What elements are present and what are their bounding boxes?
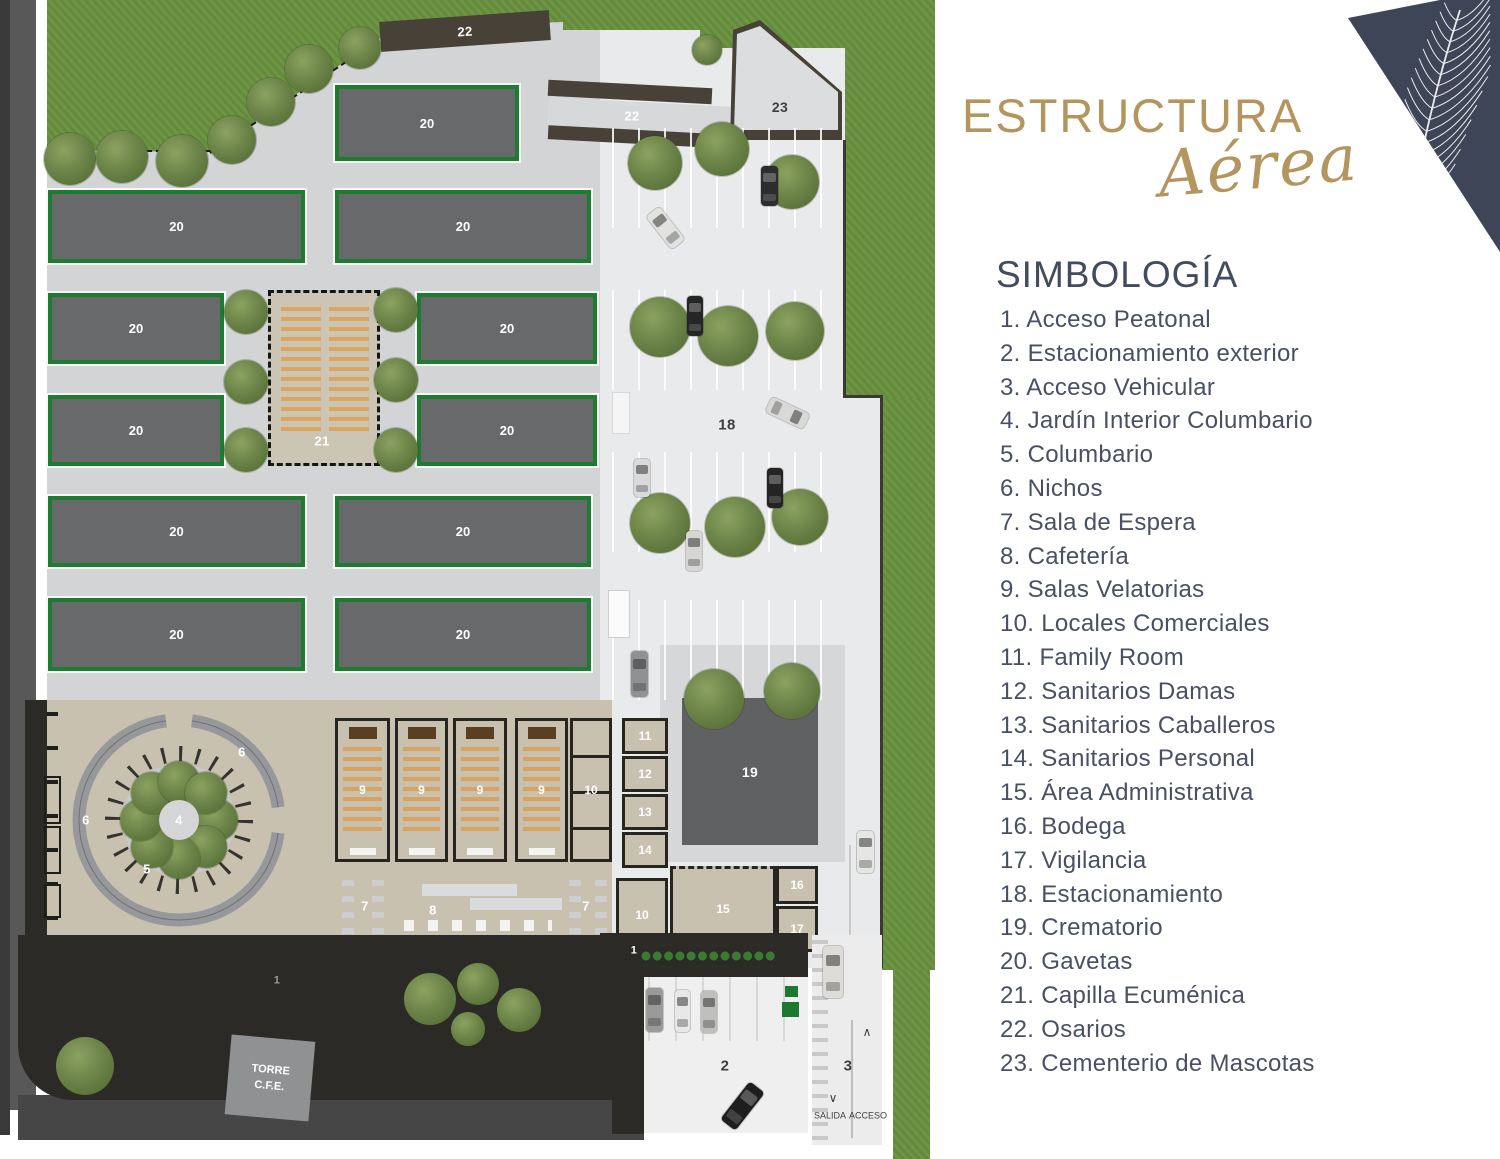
bodega: 16 (776, 866, 818, 904)
car-icon (767, 468, 783, 508)
acceso-label: ACCESO (849, 1112, 887, 1121)
legend-item: 8. Cafetería (1000, 540, 1315, 574)
zone-label-espera: 7 (361, 900, 369, 913)
feather-icon (1338, 0, 1500, 262)
car-icon (686, 531, 702, 571)
cafeteria-counter (470, 898, 562, 910)
casket (528, 727, 556, 739)
legend-item: 15. Área Administrativa (1000, 776, 1315, 810)
legend-item: 7. Sala de Espera (1000, 506, 1315, 540)
legend-item: 11. Family Room (1000, 641, 1315, 675)
zone-label-espera-2: 7 (582, 900, 590, 913)
boundary-wall-right-lower (880, 398, 883, 968)
legend-item: 10. Locales Comerciales (1000, 607, 1315, 641)
tree-icon (96, 131, 148, 183)
tree-icon (766, 302, 824, 360)
legend-item: 3. Acceso Vehicular (1000, 371, 1315, 405)
torre-label-line2: C.F.E. (254, 1077, 285, 1096)
zone-label-capilla: 21 (314, 435, 329, 448)
tree-icon (374, 358, 418, 402)
cafeteria-tables (404, 920, 552, 931)
legend-item: 9. Salas Velatorias (1000, 573, 1315, 607)
casket (349, 727, 377, 739)
zone-label-crematorio: 19 (742, 765, 758, 779)
tree-icon (457, 963, 499, 1005)
gaveta-block: 20 (335, 85, 519, 161)
zone-label-acc-vehicular: 3 (844, 1059, 853, 1074)
tree-icon (247, 78, 295, 126)
tree-icon (404, 973, 456, 1025)
gaveta-block: 20 (417, 293, 597, 364)
zone-label-acceso-peatonal-2: 1 (274, 976, 281, 987)
legend-item: 20. Gavetas (1000, 945, 1315, 979)
legend-item: 13. Sanitarios Caballeros (1000, 709, 1315, 743)
car-icon (646, 988, 663, 1032)
sanitarios-damas: 12 (622, 756, 668, 792)
sala-velatoria: 9 (395, 718, 448, 862)
legend-item: 12. Sanitarios Damas (1000, 675, 1315, 709)
car-icon (761, 166, 778, 206)
tree-icon (698, 306, 758, 366)
van-icon (823, 946, 843, 998)
kiosk-b (612, 392, 630, 434)
tree-icon (339, 27, 381, 69)
legend-item: 16. Bodega (1000, 810, 1315, 844)
corner-wedge (1338, 0, 1500, 262)
tree-icon (705, 497, 765, 557)
legend-item: 18. Estacionamiento (1000, 878, 1315, 912)
zone-label-nichos-2: 6 (82, 814, 90, 827)
legend-item: 22. Osarios (1000, 1013, 1315, 1047)
shrub-row (640, 950, 776, 963)
tree-icon (497, 988, 541, 1032)
legend-item: 21. Capilla Ecuménica (1000, 979, 1315, 1013)
hedge-square (785, 986, 798, 997)
tree-icon (684, 669, 744, 729)
cafeteria-counter (422, 884, 517, 896)
tree-icon (764, 663, 820, 719)
page: { "brand": { "title": "ESTRUCTURA", "sub… (0, 0, 1500, 1159)
sala-velatoria: 9 (335, 718, 390, 862)
gaveta-block: 20 (48, 293, 224, 364)
casket (408, 727, 436, 739)
tree-icon (695, 122, 749, 176)
kiosk-a (608, 590, 630, 638)
zone-label-est-exterior: 2 (721, 1059, 730, 1074)
locales-corridor: 10 (570, 718, 612, 862)
legend-item: 23. Cementerio de Mascotas (1000, 1047, 1315, 1081)
zone-label-velatorias: 9 (456, 784, 504, 796)
gaveta-block: 20 (417, 395, 597, 466)
casket (466, 727, 494, 739)
zone-label-velatorias: 9 (518, 784, 565, 796)
legend-item: 2. Estacionamiento exterior (1000, 337, 1315, 371)
gaveta-block: 20 (48, 496, 305, 567)
tree-icon (630, 493, 690, 553)
legend-item: 6. Nichos (1000, 472, 1315, 506)
gaveta-block: 20 (335, 496, 591, 567)
zone-label-columbario: 5 (143, 863, 151, 876)
chapel-pews-left (281, 307, 321, 435)
tree-icon (56, 1037, 114, 1095)
zone-label-nichos: 6 (238, 746, 246, 759)
zone-label-velatorias: 9 (398, 784, 445, 796)
door-threshold (350, 848, 376, 855)
tree-icon (374, 288, 418, 332)
zone-label-cafeteria: 8 (429, 904, 437, 917)
wall-planter (44, 884, 61, 918)
zone-label-acceso-peatonal: 1 (631, 946, 638, 957)
tree-icon (156, 135, 208, 187)
legend-item: 5. Columbario (1000, 438, 1315, 472)
legend-item: 4. Jardín Interior Columbario (1000, 404, 1315, 438)
gaveta-block: 20 (48, 190, 305, 263)
tree-icon (628, 136, 682, 190)
gaveta-block: 20 (48, 395, 224, 466)
grass-right-upper (845, 20, 935, 398)
site-plan: 22 22 23 20 20 20 20 20 20 20 20 20 20 2… (0, 0, 940, 1159)
zone-label-jardin: 4 (175, 814, 183, 827)
tree-icon (451, 1012, 485, 1046)
hedge-square (782, 1002, 799, 1017)
tree-icon (692, 35, 722, 65)
zone-label-mascotas: 23 (772, 100, 788, 114)
gaveta-block: 20 (48, 598, 305, 671)
grass-bottom-right (893, 970, 930, 1159)
gaveta-block: 20 (335, 190, 591, 263)
zone-label-osarios: 22 (457, 24, 473, 38)
sala-velatoria: 9 (515, 718, 568, 862)
salida-label: SALIDA (814, 1112, 846, 1121)
chapel-pews-right (329, 307, 369, 435)
boundary-wall-right-upper (843, 140, 846, 398)
left-road-strip-outer (0, 0, 10, 1135)
car-icon (634, 459, 650, 497)
road-dark-column (612, 962, 644, 1134)
sanitarios-caballeros: 13 (622, 794, 668, 830)
tree-icon (630, 297, 690, 357)
tree-icon (208, 116, 256, 164)
door-threshold (529, 848, 555, 855)
entry-arrow-icon: ∧ (863, 1026, 872, 1038)
sala-velatoria: 9 (453, 718, 507, 862)
car-icon (687, 296, 703, 336)
car-icon (857, 831, 874, 873)
tree-icon (44, 133, 96, 185)
car-icon (631, 651, 648, 697)
sanitarios-personal: 14 (622, 832, 668, 868)
zone-label-velatorias: 9 (338, 784, 387, 796)
car-icon (701, 991, 717, 1033)
exit-arrow-icon: ∨ (829, 1092, 838, 1104)
legend-item: 19. Crematorio (1000, 911, 1315, 945)
zone-label-locales: 10 (573, 784, 609, 796)
legend-heading: SIMBOLOGÍA (996, 254, 1238, 296)
torre-cfe: TORRE C.F.E. (225, 1034, 316, 1121)
road-bottom-shoulder (18, 1095, 644, 1140)
tree-icon (224, 290, 268, 334)
shelf (573, 827, 609, 830)
legend-list: 1. Acceso Peatonal 2. Estacionamiento ex… (1000, 303, 1315, 1080)
tree-icon (224, 428, 268, 472)
wall-planter (44, 826, 61, 874)
boundary-wall-step (843, 395, 883, 398)
wall-planter (44, 776, 61, 824)
car-icon (675, 990, 690, 1032)
family-room: 11 (622, 718, 668, 754)
door-threshold (467, 848, 493, 855)
tree-icon (285, 45, 333, 93)
zone-label-estacionamiento: 18 (718, 418, 736, 433)
door-threshold (409, 848, 435, 855)
legend-item: 17. Vigilancia (1000, 844, 1315, 878)
tree-icon (374, 428, 418, 472)
grass-right-lower (882, 398, 935, 970)
legend-item: 14. Sanitarios Personal (1000, 742, 1315, 776)
legend-item: 1. Acceso Peatonal (1000, 303, 1315, 337)
zone-label-osarios-2: 22 (624, 110, 639, 123)
gaveta-block: 20 (335, 598, 591, 671)
shelf (573, 755, 609, 758)
tree-icon (224, 360, 268, 404)
